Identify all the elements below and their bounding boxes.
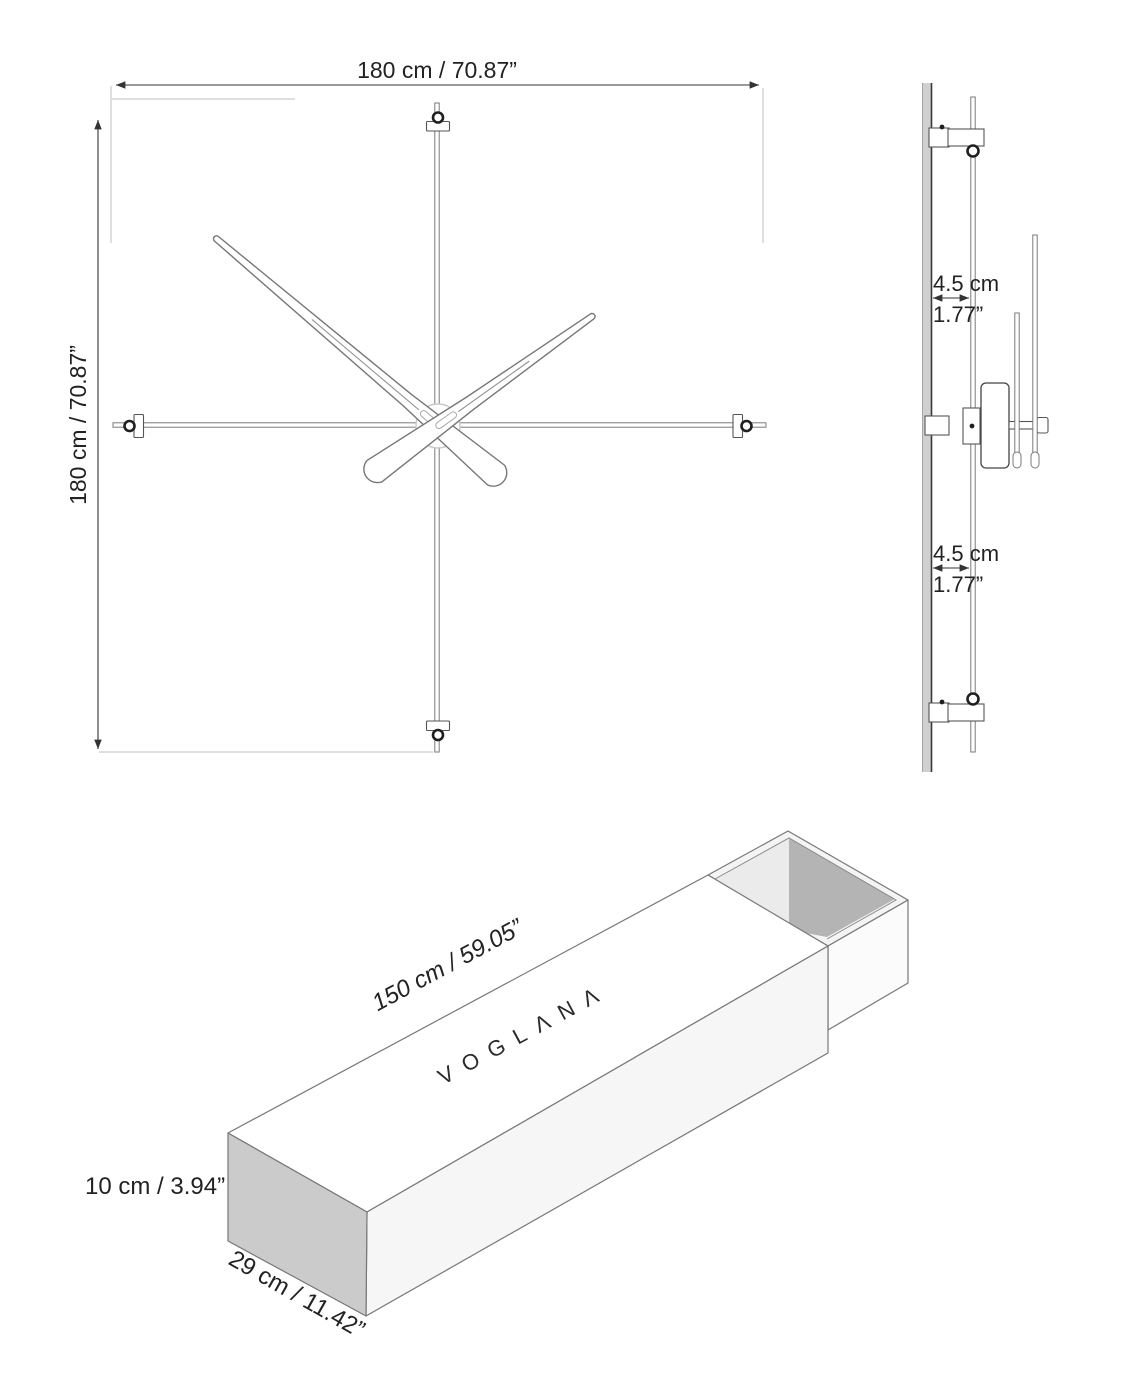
side-anchor-top xyxy=(929,125,984,157)
depth-top-inch-label: 1.77” xyxy=(933,302,983,327)
box-height-label: 10 cm / 3.94” xyxy=(85,1173,225,1200)
depth-dimension-top: 4.5 cm 1.77” xyxy=(933,271,999,327)
side-anchor-bottom xyxy=(929,694,984,723)
anchor-top xyxy=(427,113,450,132)
height-dimension-label: 180 cm / 70.87” xyxy=(65,345,91,505)
depth-dimension-bottom: 4.5 cm 1.77” xyxy=(933,541,999,597)
wall-clock-dimension-drawing: 180 cm / 70.87” 180 cm / 70.87” xyxy=(0,0,1140,1400)
anchor-right xyxy=(733,415,752,438)
front-view: 180 cm / 70.87” 180 cm / 70.87” xyxy=(65,57,766,752)
width-dimension-label: 180 cm / 70.87” xyxy=(357,57,517,83)
minute-hand xyxy=(206,227,512,491)
box-view: 150 cm / 59.05” VOGLΛNΛ 10 cm / 3.94” 29… xyxy=(85,831,908,1344)
sleeve xyxy=(228,875,828,1316)
side-center-mechanism xyxy=(925,383,1048,468)
side-view: 4.5 cm 1.77” 4.5 cm 1.77” xyxy=(923,83,1049,772)
depth-bottom-inch-label: 1.77” xyxy=(933,572,983,597)
movement-housing xyxy=(981,383,1009,468)
depth-top-cm-label: 4.5 cm xyxy=(933,271,999,296)
anchor-left xyxy=(125,415,144,438)
anchor-bottom xyxy=(427,721,450,740)
depth-bottom-cm-label: 4.5 cm xyxy=(933,541,999,566)
side-hands-edge-on xyxy=(1013,235,1039,468)
